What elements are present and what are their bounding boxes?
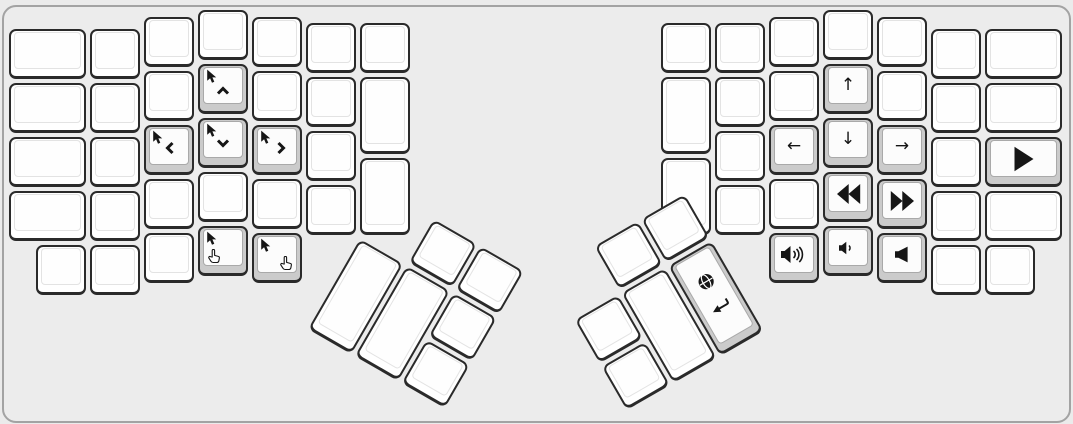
- key-l-c6-r3[interactable]: [306, 131, 356, 181]
- keycap-face: ↑: [828, 67, 868, 104]
- keycap-face: [149, 128, 189, 165]
- keycap-face: [14, 32, 81, 69]
- keycap-face: [990, 248, 1030, 285]
- key-r-c6-r2[interactable]: [931, 83, 981, 133]
- key-r-c1-r1[interactable]: [661, 23, 711, 73]
- keycap-face: [203, 229, 243, 266]
- key-l-c5-r1[interactable]: [252, 17, 302, 67]
- key-r-c4-r1[interactable]: [823, 10, 873, 60]
- key-mouse-right-click[interactable]: [252, 233, 302, 283]
- keycap-face: [990, 32, 1057, 69]
- keycap-face: [936, 140, 976, 177]
- keycap-face: [720, 80, 760, 117]
- keycap-face: [95, 194, 135, 231]
- chevron-down-icon: [216, 139, 230, 148]
- chevron-right-icon: [277, 141, 286, 155]
- key-rewind[interactable]: [823, 172, 873, 222]
- key-r-c6-r3[interactable]: [931, 137, 981, 187]
- key-l-c7-tall1[interactable]: [360, 77, 410, 154]
- chevron-up-icon: [216, 86, 230, 95]
- keycap-face: [990, 86, 1057, 123]
- key-r-c1-tall1[interactable]: [661, 77, 711, 154]
- key-l-c7-r1[interactable]: [360, 23, 410, 73]
- key-r-c3-r4[interactable]: [769, 179, 819, 229]
- keycap-face: [95, 86, 135, 123]
- keycap-face: [882, 20, 922, 57]
- key-l-c4-r4[interactable]: [198, 172, 248, 222]
- key-play[interactable]: [985, 137, 1062, 187]
- keycap-face: [720, 134, 760, 171]
- key-l-c2-r1[interactable]: [90, 29, 140, 79]
- key-l-c6-r4[interactable]: [306, 185, 356, 235]
- key-l-c1-r4[interactable]: [9, 191, 86, 241]
- keycap-face: [720, 26, 760, 63]
- keycap-face: [828, 175, 868, 212]
- keycap-face: [936, 248, 976, 285]
- key-l-c6-r1[interactable]: [306, 23, 356, 73]
- keycap-face: [203, 67, 243, 104]
- keycap-face: [936, 32, 976, 69]
- key-l-c7-tall2[interactable]: [360, 158, 410, 235]
- key-mouse-left[interactable]: [144, 125, 194, 175]
- keycap-face: [882, 74, 922, 111]
- keycap-face: [828, 229, 868, 266]
- keycap-face: ←: [774, 128, 814, 165]
- key-arrow-right[interactable]: →: [877, 125, 927, 175]
- globe-icon: [695, 270, 718, 293]
- key-mouse-down[interactable]: [198, 118, 248, 168]
- key-l-bottom-2[interactable]: [90, 245, 140, 295]
- key-r-c7-r4[interactable]: [985, 191, 1062, 241]
- keycap-face: [666, 26, 706, 63]
- chevron-left-icon: [165, 141, 174, 155]
- mouse-cursor-icon: [260, 130, 272, 145]
- arrow-left-icon: ←: [787, 138, 801, 155]
- keycap-face: [257, 20, 297, 57]
- key-l-c2-r2[interactable]: [90, 83, 140, 133]
- mouse-cursor-icon: [206, 231, 218, 246]
- key-mouse-up[interactable]: [198, 64, 248, 114]
- mouse-cursor-icon: [260, 238, 272, 253]
- volume-mute-icon: [895, 246, 909, 263]
- keycap-face: [311, 188, 351, 225]
- play-icon: [1013, 146, 1035, 172]
- key-l-c5-r2[interactable]: [252, 71, 302, 121]
- mouse-cursor-icon: [152, 130, 164, 145]
- key-arrow-up[interactable]: ↑: [823, 64, 873, 114]
- key-volume-up[interactable]: [769, 233, 819, 283]
- keycap-face: [14, 140, 81, 177]
- keycap-face: [882, 236, 922, 273]
- key-l-c2-r3[interactable]: [90, 137, 140, 187]
- key-r-c3-r1[interactable]: [769, 17, 819, 67]
- key-volume-down[interactable]: [823, 226, 873, 276]
- key-r-c5-r1[interactable]: [877, 17, 927, 67]
- keycap-face: [14, 194, 81, 231]
- key-l-c1-r2[interactable]: [9, 83, 86, 133]
- key-arrow-left[interactable]: ←: [769, 125, 819, 175]
- key-l-c6-r2[interactable]: [306, 77, 356, 127]
- key-r-c2-r2[interactable]: [715, 77, 765, 127]
- key-l-c1-r1[interactable]: [9, 29, 86, 79]
- rewind-icon: [836, 184, 861, 204]
- keycap-face: [828, 13, 868, 50]
- hand-pointer-icon: [279, 256, 293, 271]
- keycap-face: [95, 248, 135, 285]
- keycap-face: [882, 182, 922, 219]
- key-r-c3-r2[interactable]: [769, 71, 819, 121]
- key-fast-forward[interactable]: [877, 179, 927, 229]
- mouse-cursor-icon: [206, 69, 218, 84]
- keycap-face: [257, 182, 297, 219]
- keycap-face: [936, 86, 976, 123]
- keycap-face: [774, 74, 814, 111]
- arrow-right-icon: →: [895, 138, 909, 155]
- keycap-face: [149, 20, 189, 57]
- keycap-face: [203, 13, 243, 50]
- keycap-face: [95, 32, 135, 69]
- key-l-bottom-1[interactable]: [36, 245, 86, 295]
- key-r-c2-r1[interactable]: [715, 23, 765, 73]
- keycap-face: [365, 161, 405, 225]
- key-r-c7-r2[interactable]: [985, 83, 1062, 133]
- arrow-down-icon: ↓: [841, 131, 855, 148]
- volume-up-icon: [781, 245, 808, 264]
- arrow-up-icon: ↑: [841, 77, 855, 94]
- keycap-face: [203, 175, 243, 212]
- keycap-face: [95, 140, 135, 177]
- key-l-bottom-3[interactable]: [144, 233, 194, 283]
- keycap-face: [990, 194, 1057, 231]
- key-r-c6-r4[interactable]: [931, 191, 981, 241]
- key-l-c5-r4[interactable]: [252, 179, 302, 229]
- keycap-face: [990, 140, 1057, 177]
- key-mouse-left-click[interactable]: [198, 226, 248, 276]
- keycap-face: [149, 236, 189, 273]
- key-l-c3-r1[interactable]: [144, 17, 194, 67]
- key-l-c3-r4[interactable]: [144, 179, 194, 229]
- key-mouse-right[interactable]: [252, 125, 302, 175]
- return-icon: [709, 297, 734, 319]
- keycap-face: [257, 128, 297, 165]
- keycap-face: [311, 26, 351, 63]
- keycap-face: [257, 74, 297, 111]
- keycap-face: [149, 182, 189, 219]
- key-r-c5-r2[interactable]: [877, 71, 927, 121]
- fast-forward-icon: [890, 191, 915, 211]
- keycap-face: [666, 80, 706, 144]
- keycap-face: [774, 20, 814, 57]
- keycap-face: [720, 188, 760, 225]
- key-l-c1-r3[interactable]: [9, 137, 86, 187]
- keycap-face: [14, 86, 81, 123]
- keycap-face: [365, 80, 405, 144]
- key-r-c6-r1[interactable]: [931, 29, 981, 79]
- key-volume-mute[interactable]: [877, 233, 927, 283]
- key-r-c2-r3[interactable]: [715, 131, 765, 181]
- key-l-c2-r4[interactable]: [90, 191, 140, 241]
- keycap-face: [774, 182, 814, 219]
- keycap-face: [203, 121, 243, 158]
- keycap-face: [257, 236, 297, 273]
- mouse-cursor-icon: [206, 123, 218, 138]
- keycap-face: [774, 236, 814, 273]
- key-r-c7-r1[interactable]: [985, 29, 1062, 79]
- keycap-face: →: [882, 128, 922, 165]
- key-arrow-down[interactable]: ↓: [823, 118, 873, 168]
- key-l-c3-r2[interactable]: [144, 71, 194, 121]
- keycap-face: [41, 248, 81, 285]
- hand-pointer-icon: [207, 249, 221, 264]
- key-r-bottom-5[interactable]: [985, 245, 1035, 295]
- key-r-c2-r4[interactable]: [715, 185, 765, 235]
- keycap-face: [311, 134, 351, 171]
- key-l-c4-r1[interactable]: [198, 10, 248, 60]
- keycap-face: [149, 74, 189, 111]
- keycap-face: [936, 194, 976, 231]
- key-r-bottom-4[interactable]: [931, 245, 981, 295]
- keycap-face: ↓: [828, 121, 868, 158]
- volume-down-icon: [839, 241, 858, 255]
- keycap-face: [311, 80, 351, 117]
- keycap-face: [365, 26, 405, 63]
